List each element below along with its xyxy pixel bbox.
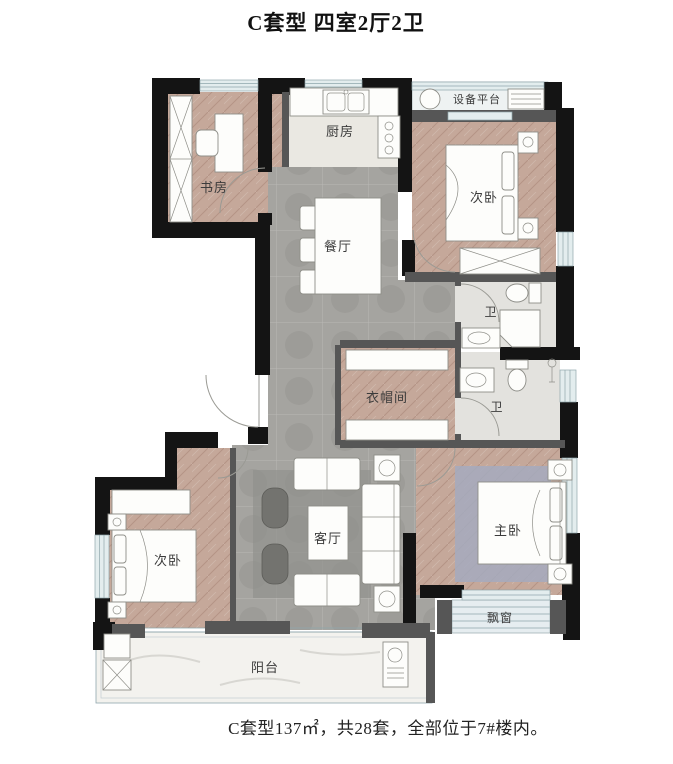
toilet-tank — [506, 360, 528, 369]
bath-lower-window — [560, 370, 576, 402]
bedroom-top-wall-window — [448, 112, 512, 120]
toilet-bowl — [506, 284, 528, 302]
nightstand — [108, 602, 126, 618]
master-bottom-window — [462, 590, 550, 600]
room-label-closet: 衣帽间 — [366, 390, 408, 405]
toilet-tank — [529, 283, 541, 303]
room-label-bay-window: 飘窗 — [487, 611, 513, 625]
armchair — [262, 544, 288, 584]
room-label-kitchen: 厨房 — [326, 124, 354, 139]
bedroom-top-right-window — [558, 232, 573, 266]
nightstand — [108, 514, 126, 530]
bath-sink — [460, 368, 494, 392]
caption: C套型137㎡，共28套，全部位于7#楼内。 — [228, 719, 548, 738]
armchair — [262, 488, 288, 528]
page-title: C套型 四室2厅2卫 — [247, 11, 424, 35]
bedroom-left-window — [95, 535, 109, 598]
study-desk — [215, 114, 243, 172]
room-label-bath-upper: 卫 — [484, 305, 497, 319]
balcony-cabinet — [104, 634, 130, 658]
room-label-bath-lower: 卫 — [490, 400, 503, 414]
washing-machine — [383, 642, 408, 687]
closet-rack — [346, 420, 448, 440]
study-window — [200, 80, 258, 91]
room-label-bedroom-left: 次卧 — [154, 553, 182, 568]
floor-plan-page: C套型 四室2厅2卫 — [0, 0, 673, 764]
nightstand — [518, 132, 538, 153]
closet-rack — [346, 350, 448, 370]
room-label-study: 书房 — [200, 180, 228, 195]
nightstand — [518, 218, 538, 239]
nightstand — [548, 460, 572, 480]
toilet-bowl — [508, 369, 526, 391]
floor-plan: C套型 四室2厅2卫 — [0, 0, 673, 764]
room-label-equipment-platform: 设备平台 — [453, 92, 501, 106]
nightstand — [548, 564, 572, 584]
room-label-living: 客厅 — [314, 531, 342, 546]
equipment-vent — [420, 89, 440, 109]
room-label-dining: 餐厅 — [324, 239, 352, 254]
study-chair — [196, 130, 218, 156]
pillow — [114, 567, 126, 595]
shower — [500, 310, 540, 347]
room-label-bedroom-top: 次卧 — [470, 190, 498, 205]
side-table — [374, 586, 400, 612]
bedroom-left-wardrobe — [112, 490, 190, 514]
pillow — [114, 535, 126, 563]
bedroom-left-furniture — [108, 490, 196, 618]
room-label-balcony: 阳台 — [251, 660, 279, 675]
side-table — [374, 455, 400, 481]
pillow — [502, 196, 514, 234]
kitchen-sink — [323, 90, 369, 114]
pillow — [502, 152, 514, 190]
room-label-master: 主卧 — [494, 523, 522, 538]
